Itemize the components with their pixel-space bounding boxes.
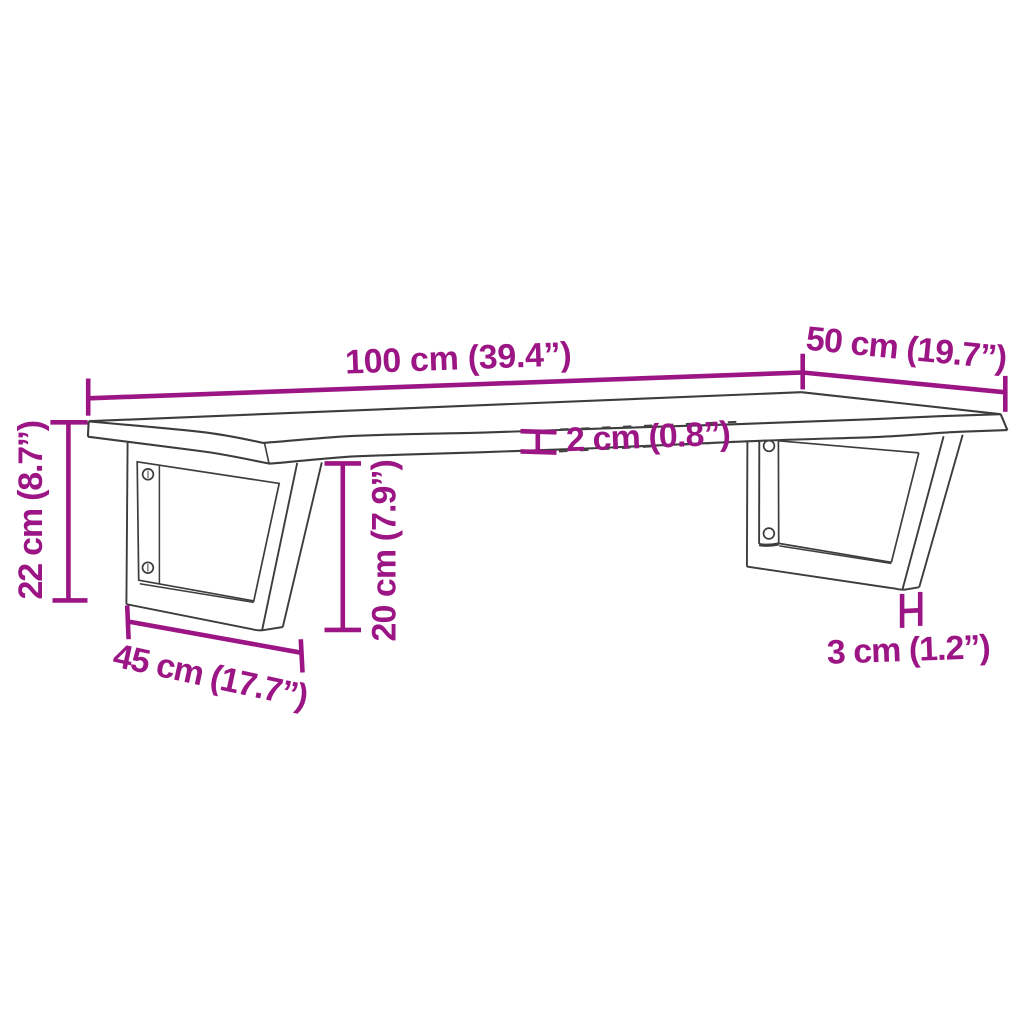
svg-text:2 cm (0.8”): 2 cm (0.8”): [565, 415, 730, 460]
svg-text:20 cm (7.9”): 20 cm (7.9”): [366, 460, 404, 641]
svg-text:3 cm (1.2”): 3 cm (1.2”): [826, 628, 990, 672]
svg-text:22 cm (8.7”): 22 cm (8.7”): [12, 421, 50, 599]
